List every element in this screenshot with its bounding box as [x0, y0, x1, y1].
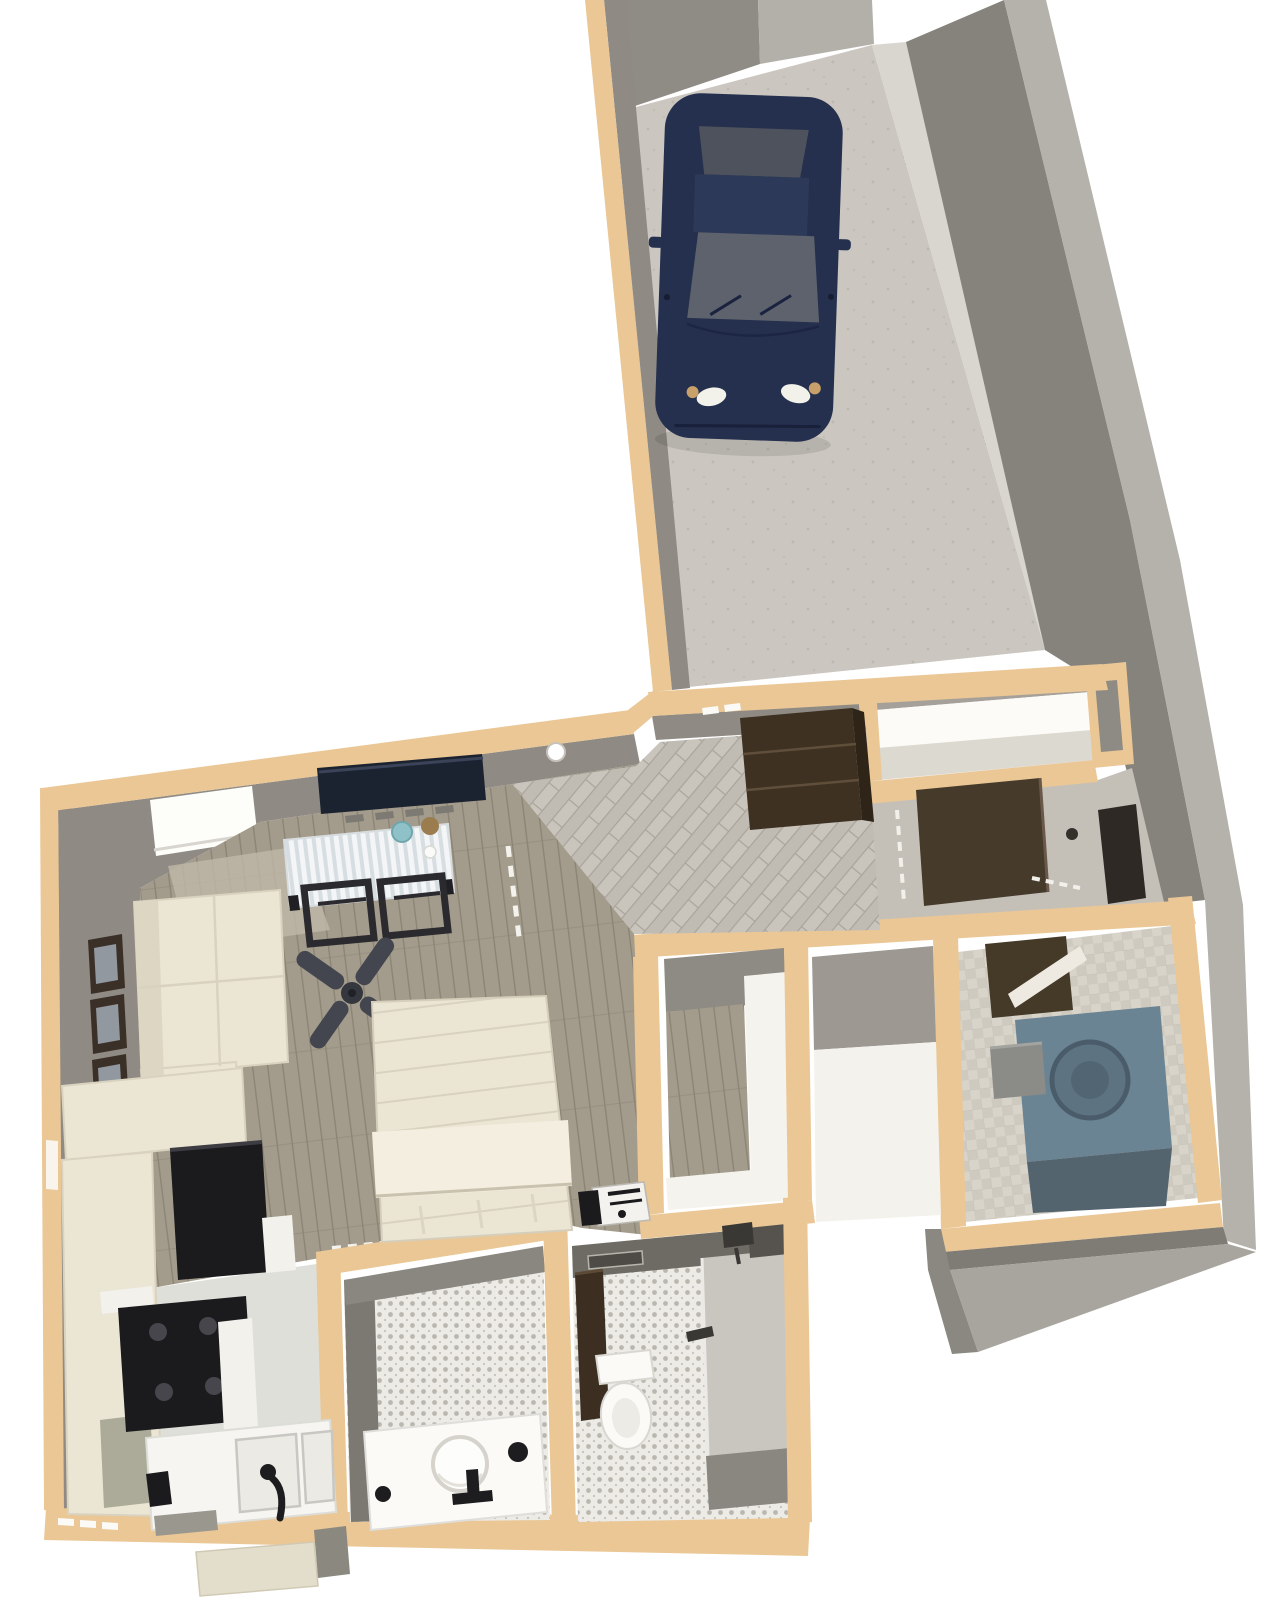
storage-wall-shadow	[812, 946, 936, 1050]
storage-floor	[814, 1042, 941, 1222]
car-mirror	[836, 239, 851, 251]
car	[641, 92, 855, 460]
counter-strip	[218, 1318, 258, 1432]
bread-basket	[421, 817, 439, 835]
shower-corner-shadow	[748, 1224, 788, 1258]
shower-head	[722, 1222, 754, 1248]
shower-bathroom	[543, 1196, 812, 1527]
vanity-sink	[364, 1414, 547, 1530]
side-door-knob	[1066, 828, 1078, 840]
car-roof	[693, 174, 809, 236]
cup	[424, 846, 436, 858]
laundry-room	[933, 896, 1223, 1252]
laundry-basket	[990, 1043, 1046, 1099]
sink-basin	[302, 1431, 334, 1503]
step-beige	[196, 1542, 318, 1596]
floorplan-3d-render	[0, 0, 1284, 1600]
car-rear-window	[697, 126, 809, 178]
car-mirror	[649, 236, 664, 248]
toilet-tank	[596, 1350, 654, 1384]
car-windshield	[687, 232, 822, 323]
burner	[199, 1317, 217, 1335]
burner	[149, 1323, 167, 1341]
counter-end	[262, 1215, 296, 1273]
vanity-knob	[375, 1486, 391, 1502]
washing-machine	[1015, 1006, 1172, 1213]
storage-room	[812, 946, 941, 1222]
burner	[205, 1377, 223, 1395]
shower-floor	[702, 1250, 789, 1456]
ceiling-light	[547, 743, 565, 761]
burner	[155, 1383, 173, 1401]
vanity-basin	[433, 1437, 487, 1491]
hall-dresser	[740, 708, 874, 830]
closet-shelf-vertical	[744, 972, 792, 1203]
bed	[372, 996, 572, 1242]
teapot	[392, 822, 412, 842]
closet-wood-floor	[666, 1004, 750, 1180]
vanity-knob	[508, 1442, 528, 1462]
step-gray	[314, 1526, 350, 1578]
closet-divider-wall	[784, 942, 812, 1202]
shower-mat	[706, 1448, 792, 1510]
floorplan-canvas	[0, 0, 1284, 1600]
walk-in-closet	[664, 948, 792, 1210]
table-leg	[288, 895, 300, 911]
dish-rack	[146, 1471, 172, 1507]
refrigerator	[170, 1142, 270, 1280]
bathroom-vanity-room	[316, 1216, 550, 1530]
bath2-right-wall	[783, 1196, 812, 1525]
